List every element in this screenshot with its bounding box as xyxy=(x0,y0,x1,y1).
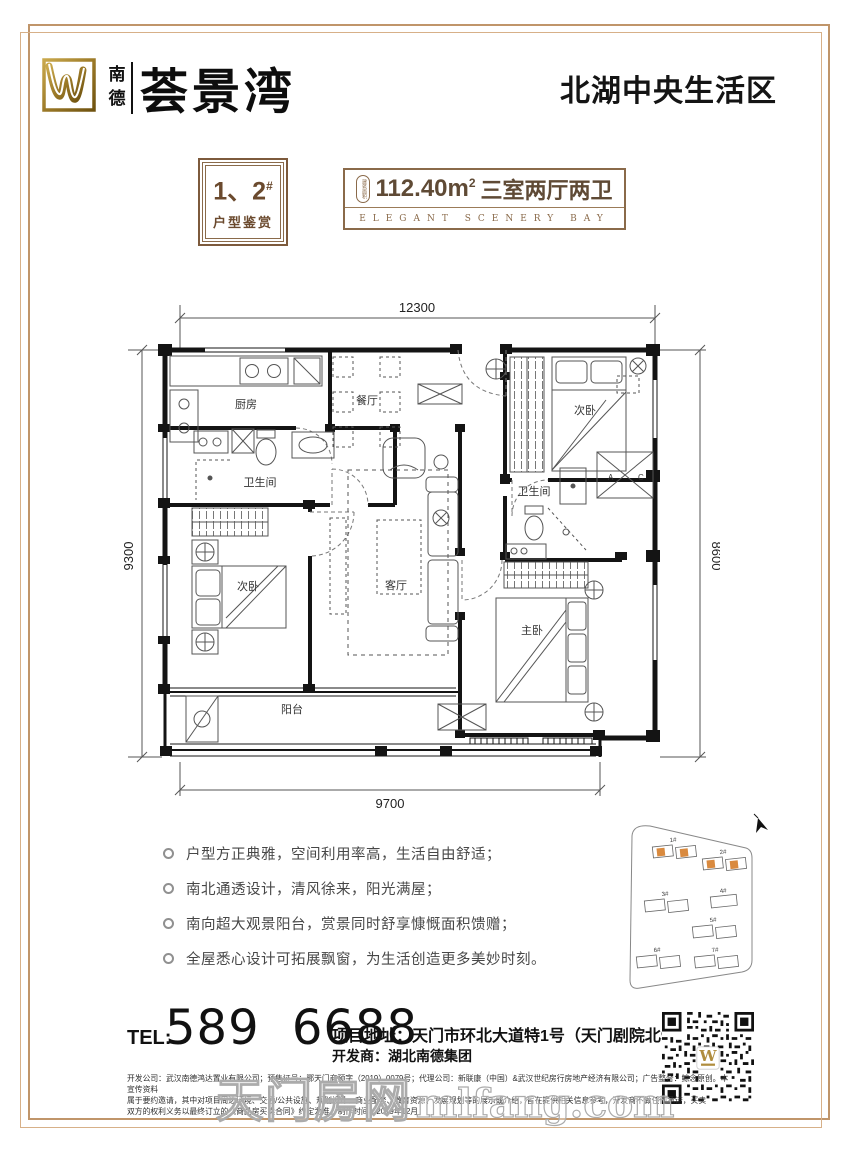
unit-number: 1、2# xyxy=(213,173,273,204)
poster-page: 南 德 荟景湾 北湖中央生活区 1、2# 户型鉴赏 建筑面积 112.40m2 … xyxy=(0,0,850,1154)
building-cluster: 3# xyxy=(644,890,689,915)
dim-top: 12300 xyxy=(399,300,435,315)
site-plan: 1# 2# 3# 4# 5# 6# xyxy=(610,812,775,1002)
svg-text:6#: 6# xyxy=(653,947,661,954)
watermark: 天门房网 mlfang.com xyxy=(216,1062,674,1131)
svg-text:2#: 2# xyxy=(719,849,727,856)
area-pill-icon: 建筑面积 xyxy=(356,175,370,203)
ring-bullet-icon xyxy=(163,918,174,929)
svg-text:7#: 7# xyxy=(711,947,719,954)
building-cluster: 7# xyxy=(694,946,739,971)
ring-bullet-icon xyxy=(163,848,174,859)
region-title: 北湖中央生活区 xyxy=(560,66,777,110)
room-label-bath-right: 卫生间 xyxy=(518,484,551,498)
area-box: 建筑面积 112.40m2 三室两厅两卫 ELEGANT SCENERY BAY xyxy=(343,168,626,230)
unit-caption: 户型鉴赏 xyxy=(213,212,273,231)
svg-text:4#: 4# xyxy=(720,888,728,895)
room-label-bedroom-top: 次卧 xyxy=(574,403,596,417)
brand-name: 荟景湾 xyxy=(140,52,296,122)
room-label-living: 客厅 xyxy=(385,578,407,592)
room-label-dining: 餐厅 xyxy=(356,393,378,407)
svg-text:1#: 1# xyxy=(669,837,677,844)
feature-item: 户型方正典雅，空间利用率高，生活自由舒适； xyxy=(163,843,546,864)
stair-label-c: C xyxy=(638,473,644,482)
brand-divider xyxy=(131,62,133,114)
brand-chinese-vertical: 南 德 xyxy=(106,63,128,111)
room-label-balcony: 阳台 xyxy=(281,702,303,716)
room-label-bath-left: 卫生间 xyxy=(244,475,277,489)
qr-center-logo: W xyxy=(698,1047,717,1065)
brand-logo-icon xyxy=(42,58,96,112)
unit-badge: 1、2# 户型鉴赏 xyxy=(198,158,288,246)
area-layout: 三室两厅两卫 xyxy=(481,173,613,205)
dim-right: 8600 xyxy=(709,542,720,571)
ring-bullet-icon xyxy=(163,953,174,964)
building-cluster: 4# xyxy=(710,887,738,908)
dim-left: 9300 xyxy=(121,542,136,571)
room-label-kitchen: 厨房 xyxy=(235,398,257,411)
building-cluster: 6# xyxy=(636,946,681,971)
dim-bottom: 9700 xyxy=(376,796,405,811)
building-cluster: 1# xyxy=(652,836,697,861)
svg-text:5#: 5# xyxy=(709,917,717,924)
svg-text:3#: 3# xyxy=(661,891,669,898)
dimension-lines xyxy=(128,305,706,796)
ring-bullet-icon xyxy=(163,883,174,894)
feature-item: 南北通透设计，清风徐来，阳光满屋； xyxy=(163,878,546,899)
room-label-bedroom-left: 次卧 xyxy=(237,579,259,593)
area-value: 112.40m2 xyxy=(375,175,475,203)
area-subtitle-en: ELEGANT SCENERY BAY xyxy=(345,208,624,224)
brand-char-2: 德 xyxy=(106,87,128,111)
north-arrow-icon xyxy=(754,814,768,833)
building-cluster: 2# xyxy=(702,848,747,873)
floor-plan: 12300 9300 8600 9700 xyxy=(100,290,720,815)
feature-item: 全屋悉心设计可拓展飘窗，为生活创造更多美妙时刻。 xyxy=(163,948,546,969)
building-cluster: 5# xyxy=(692,916,737,941)
stair-label-a: A xyxy=(608,473,614,482)
feature-list: 户型方正典雅，空间利用率高，生活自由舒适； 南北通透设计，清风徐来，阳光满屋； … xyxy=(163,843,546,983)
feature-item: 南向超大观景阳台，赏景同时舒享慷慨面积馈赠； xyxy=(163,913,546,934)
brand-char-1: 南 xyxy=(106,63,128,87)
room-label-master: 主卧 xyxy=(521,624,543,637)
